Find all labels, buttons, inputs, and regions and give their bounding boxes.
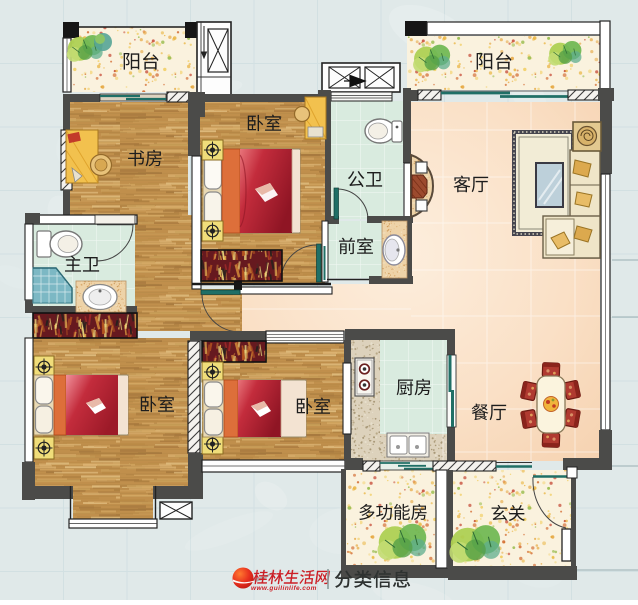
svg-text:www.guilinlife.com: www.guilinlife.com — [251, 585, 317, 592]
